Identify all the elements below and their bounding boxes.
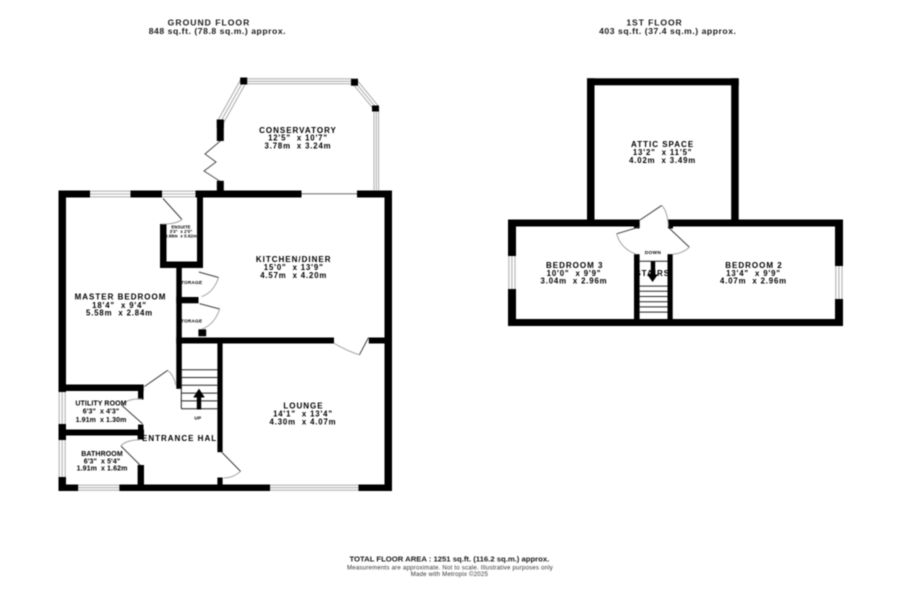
svg-text:4.30m x 4.07m: 4.30m x 4.07m bbox=[270, 418, 337, 427]
svg-text:848 sq.ft. (78.8 sq.m.) approx: 848 sq.ft. (78.8 sq.m.) approx. bbox=[149, 26, 286, 36]
svg-text:403 sq.ft. (37.4 sq.m.) approx: 403 sq.ft. (37.4 sq.m.) approx. bbox=[599, 26, 736, 36]
svg-text:3.78m x 3.24m: 3.78m x 3.24m bbox=[265, 142, 332, 151]
svg-text:Made with Metropix ©2025: Made with Metropix ©2025 bbox=[411, 571, 489, 578]
svg-text:3.04m x 2.96m: 3.04m x 2.96m bbox=[541, 276, 608, 285]
svg-text:4.02m x 3.49m: 4.02m x 3.49m bbox=[629, 156, 696, 165]
svg-text:BATHROOM: BATHROOM bbox=[81, 451, 123, 458]
svg-text:0.99m x 0.62m: 0.99m x 0.62m bbox=[165, 233, 197, 238]
svg-text:5.58m x 2.84m: 5.58m x 2.84m bbox=[86, 309, 153, 318]
svg-text:DOWN: DOWN bbox=[645, 250, 662, 256]
svg-text:1.91m x 1.62m: 1.91m x 1.62m bbox=[77, 465, 128, 472]
svg-text:TOTAL FLOOR AREA : 1251 sq.ft.: TOTAL FLOOR AREA : 1251 sq.ft. (116.2 sq… bbox=[350, 555, 550, 564]
svg-text:4.07m x 2.96m: 4.07m x 2.96m bbox=[720, 276, 787, 285]
svg-text:UP: UP bbox=[194, 416, 202, 422]
svg-text:1.91m x 1.30m: 1.91m x 1.30m bbox=[76, 417, 127, 424]
svg-text:STORAGE: STORAGE bbox=[178, 318, 203, 323]
svg-text:STORAGE: STORAGE bbox=[178, 280, 203, 285]
svg-text:4.57m x 4.20m: 4.57m x 4.20m bbox=[260, 271, 327, 280]
svg-text:6'3" x 4'3": 6'3" x 4'3" bbox=[83, 409, 119, 416]
svg-text:ENTRANCE HALL: ENTRANCE HALL bbox=[142, 434, 223, 443]
svg-text:UTILITY ROOM: UTILITY ROOM bbox=[75, 400, 126, 407]
